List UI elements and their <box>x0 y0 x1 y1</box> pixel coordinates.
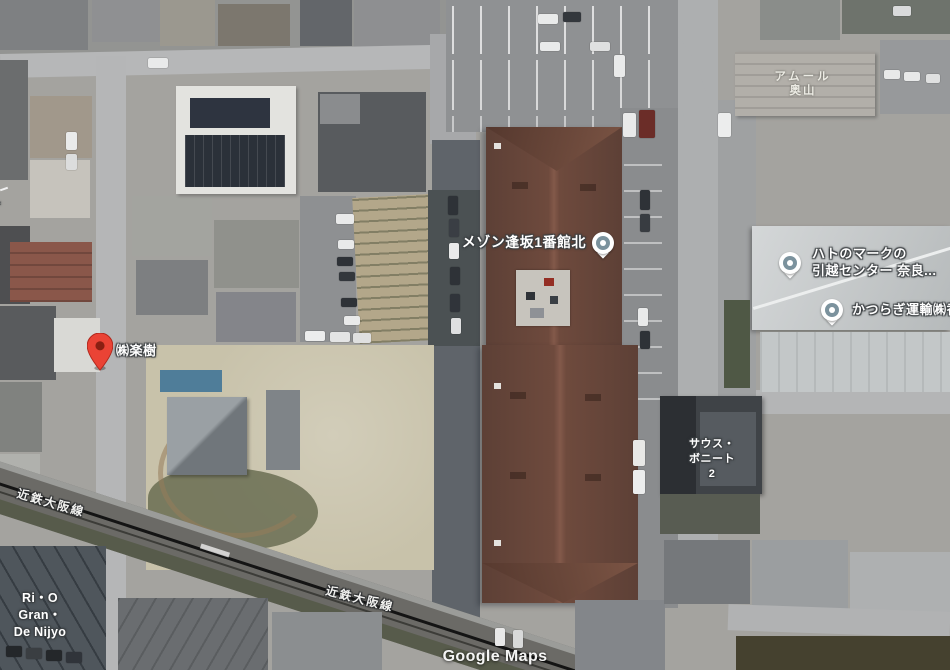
hato-label[interactable]: ハトのマークの 引越センター 奈良... <box>812 245 936 279</box>
destination-pin-icon <box>87 333 113 371</box>
rooftop-equipment <box>544 278 554 286</box>
rooftop-equipment <box>550 296 558 304</box>
car <box>66 154 77 170</box>
truck <box>633 440 645 466</box>
tree-cover <box>724 300 750 388</box>
google-maps-watermark[interactable]: Google Maps <box>443 648 548 666</box>
car <box>341 298 357 307</box>
red-roof-building <box>10 242 92 302</box>
car <box>338 240 354 249</box>
building <box>160 0 215 46</box>
destination-pin[interactable] <box>87 333 113 371</box>
roof-vent <box>585 474 601 481</box>
roof-vent <box>580 184 596 191</box>
poi-marker[interactable] <box>779 252 801 280</box>
building <box>92 0 162 42</box>
roof-vent <box>510 472 526 479</box>
car <box>46 650 62 661</box>
tree-cover <box>736 636 950 670</box>
car <box>148 58 168 68</box>
car <box>563 12 581 22</box>
car <box>353 333 371 343</box>
building <box>0 0 88 50</box>
building <box>664 540 750 604</box>
maison-label[interactable]: メゾン逢坂1番館北 <box>462 234 586 250</box>
car <box>66 132 77 150</box>
solar-panels <box>185 135 285 187</box>
edge-label-fragment: ~ <box>0 196 1 212</box>
building <box>30 96 92 158</box>
building <box>118 598 268 670</box>
car <box>337 257 353 266</box>
building <box>136 260 208 315</box>
car <box>640 331 650 349</box>
hato-label-line1: ハトのマークの <box>812 245 936 262</box>
car <box>336 214 354 224</box>
car <box>6 646 22 657</box>
roof-vent-white <box>494 383 501 389</box>
building <box>760 0 840 40</box>
garden-plot <box>352 194 436 344</box>
truck <box>639 110 655 138</box>
blue-tarp <box>160 370 222 392</box>
building <box>300 0 352 46</box>
car <box>305 331 325 341</box>
roof-vent-white <box>494 540 501 546</box>
roof-vent <box>510 392 526 399</box>
building <box>266 390 300 470</box>
building <box>850 552 950 614</box>
car <box>451 318 461 334</box>
destination-label[interactable]: ㈱楽樹 <box>116 343 157 359</box>
warehouse-roof <box>760 332 950 392</box>
car <box>640 214 650 232</box>
car <box>893 6 911 16</box>
amour-roof-text: アムール 奥山 <box>774 70 831 98</box>
roof-vent <box>585 394 601 401</box>
rooftop-equipment <box>526 292 535 300</box>
car <box>718 113 731 137</box>
car <box>638 308 648 326</box>
rio-label[interactable]: Ri・O Gran・ De Nijyo <box>14 590 66 641</box>
car <box>614 55 625 77</box>
car <box>449 219 459 237</box>
hato-label-line2: 引越センター 奈良... <box>812 262 936 279</box>
car <box>66 652 82 663</box>
building <box>0 382 42 452</box>
car <box>540 42 560 51</box>
edge-label-fragment-mark <box>0 187 8 192</box>
building <box>132 196 212 256</box>
building <box>214 220 299 288</box>
house <box>167 397 247 475</box>
car <box>640 190 650 210</box>
road <box>752 390 950 414</box>
car <box>330 332 350 342</box>
truck <box>633 470 645 494</box>
parking-stalls <box>452 60 664 110</box>
building <box>0 306 56 380</box>
rooftop-equipment <box>530 308 544 318</box>
car <box>449 243 459 259</box>
car <box>495 628 505 646</box>
map-canvas[interactable]: ㈱楽樹 メゾン逢坂1番館北 ハトのマークの 引越センター 奈良... かつらぎ運… <box>0 0 950 670</box>
car <box>26 648 42 659</box>
car <box>513 630 523 648</box>
roof-vent <box>512 182 528 189</box>
roof-vent-white <box>494 143 501 149</box>
car <box>538 14 558 24</box>
poi-marker[interactable] <box>821 299 843 327</box>
katsuragi-label[interactable]: かつらぎ運輸㈱香 <box>852 302 950 318</box>
car <box>904 72 920 81</box>
car <box>344 316 360 325</box>
car <box>450 294 460 312</box>
solar-panels <box>190 98 270 128</box>
building <box>0 60 28 180</box>
south-bonito-label: サウス・ ボニート 2 <box>689 437 735 482</box>
tree-cover <box>660 494 760 534</box>
car <box>450 267 460 285</box>
building <box>30 160 90 218</box>
building <box>216 292 296 342</box>
poi-marker[interactable] <box>592 232 614 260</box>
car <box>623 113 636 137</box>
roof-detail <box>320 94 360 124</box>
car <box>339 272 355 281</box>
car <box>590 42 610 51</box>
car <box>448 196 458 215</box>
building <box>575 600 665 670</box>
building <box>752 540 848 610</box>
car <box>884 70 900 79</box>
building <box>272 612 382 670</box>
building <box>218 4 290 46</box>
car <box>926 74 940 83</box>
